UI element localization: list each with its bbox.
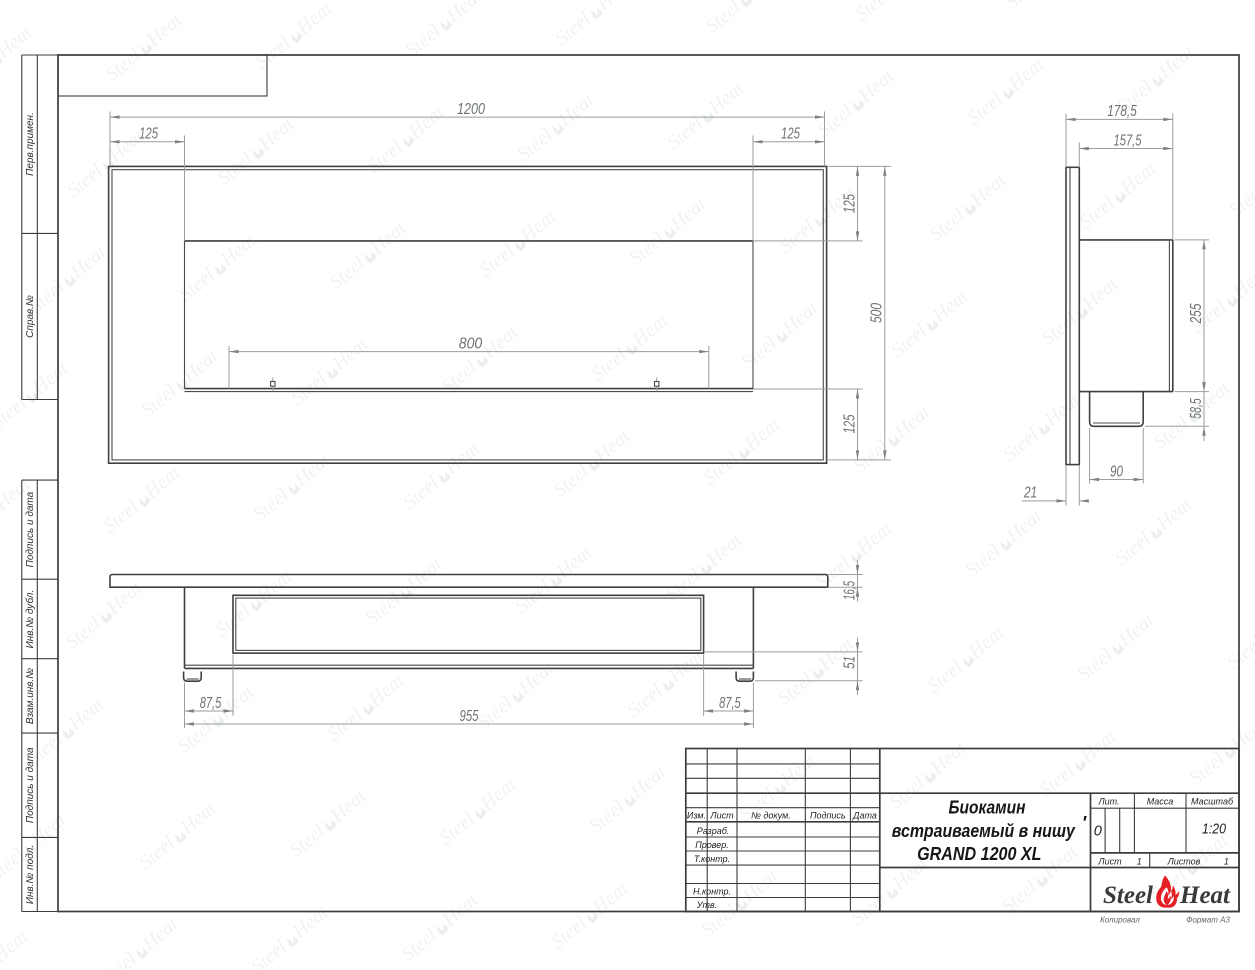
svg-text:Steel: Steel: [363, 136, 407, 178]
svg-text:Steel: Steel: [849, 436, 893, 478]
svg-text:157,5: 157,5: [1114, 132, 1142, 149]
svg-text:Steel: Steel: [1073, 644, 1117, 686]
svg-text:GRAND 1200 XL: GRAND 1200 XL: [917, 843, 1041, 864]
svg-text:Steel: Steel: [1035, 760, 1079, 802]
svg-text:Провер.: Провер.: [695, 840, 729, 850]
svg-text:Разраб.: Разраб.: [697, 826, 730, 836]
svg-text:Инв.№ дубл.: Инв.№ дубл.: [24, 590, 36, 649]
svg-text:Steel: Steel: [137, 380, 181, 422]
svg-text:Подпись и дата: Подпись и дата: [25, 491, 36, 567]
svg-text:Steel: Steel: [663, 112, 707, 154]
svg-text:Масштаб: Масштаб: [1191, 797, 1234, 807]
svg-text:955: 955: [460, 708, 479, 725]
svg-text:Steel: Steel: [1225, 180, 1255, 222]
svg-text:21: 21: [1023, 485, 1037, 502]
svg-text:0: 0: [1094, 824, 1102, 840]
svg-text:Steel: Steel: [847, 888, 891, 930]
svg-text:1: 1: [1137, 857, 1142, 867]
svg-text:Перв.примен.: Перв.примен.: [25, 112, 36, 176]
svg-text:Steel: Steel: [701, 0, 745, 38]
svg-text:Steel: Steel: [813, 100, 857, 142]
svg-text:Steel: Steel: [63, 160, 107, 202]
svg-text:1:20: 1:20: [1202, 822, 1226, 838]
svg-text:Подпись: Подпись: [810, 811, 846, 821]
svg-text:500: 500: [869, 303, 886, 323]
svg-text:Steel: Steel: [923, 656, 967, 698]
svg-text:Steel: Steel: [285, 820, 329, 862]
svg-text:Steel: Steel: [323, 704, 367, 746]
svg-text:Steel: Steel: [97, 948, 141, 970]
svg-text:Steel: Steel: [549, 460, 593, 502]
svg-text:Steel: Steel: [547, 912, 591, 954]
svg-text:Т.контр.: Т.контр.: [694, 854, 730, 864]
svg-text:Steel: Steel: [61, 612, 105, 654]
svg-text:Лист: Лист: [709, 811, 734, 821]
svg-text:16,5: 16,5: [841, 581, 858, 600]
svg-text:Heat: Heat: [1228, 261, 1255, 304]
svg-text:Steel: Steel: [851, 0, 895, 26]
svg-text:Steel: Steel: [251, 32, 295, 74]
svg-text:Steel: Steel: [585, 796, 629, 838]
svg-text:1200: 1200: [457, 101, 485, 118]
svg-text:Steel: Steel: [887, 320, 931, 362]
svg-text:Steel: Steel: [737, 332, 781, 374]
svg-text:125: 125: [781, 126, 800, 143]
svg-text:Steel: Steel: [99, 496, 143, 538]
svg-text:58,5: 58,5: [1188, 398, 1205, 419]
svg-text:Справ.№: Справ.№: [25, 295, 36, 338]
svg-text:Steel: Steel: [661, 564, 705, 606]
svg-text:Steel: Steel: [101, 44, 145, 86]
svg-text:87,5: 87,5: [200, 695, 222, 712]
svg-text:Heat: Heat: [1179, 882, 1231, 909]
svg-text:Heat: Heat: [0, 21, 37, 64]
svg-text:Дата: Дата: [852, 811, 877, 821]
svg-text:Steel: Steel: [1111, 528, 1155, 570]
svg-text:Биокамин: Биокамин: [949, 797, 1026, 818]
svg-text:Масса: Масса: [1147, 797, 1174, 807]
svg-text:Steel: Steel: [1151, 0, 1195, 2]
svg-text:125: 125: [841, 194, 858, 213]
svg-text:Steel: Steel: [475, 240, 519, 282]
svg-text:Копировал: Копировал: [1100, 916, 1140, 925]
svg-text:Steel: Steel: [1001, 0, 1045, 14]
svg-text:87,5: 87,5: [719, 695, 741, 712]
svg-text:125: 125: [139, 126, 158, 143]
svg-text:Steel: Steel: [325, 252, 369, 294]
svg-text:Steel: Steel: [963, 88, 1007, 130]
svg-text:Лит.: Лит.: [1097, 797, 1119, 807]
svg-text:Steel: Steel: [435, 808, 479, 850]
svg-text:Steel: Steel: [397, 924, 441, 966]
svg-text:Steel: Steel: [249, 484, 293, 526]
svg-text:Steel: Steel: [473, 692, 517, 734]
svg-text:Steel: Steel: [699, 448, 743, 490]
svg-text:Steel: Steel: [775, 216, 819, 258]
svg-text:Н.контр.: Н.контр.: [693, 886, 731, 896]
svg-text:Steel: Steel: [135, 832, 179, 874]
svg-text:Steel: Steel: [961, 540, 1005, 582]
svg-text:51: 51: [841, 656, 858, 669]
svg-text:Steel: Steel: [247, 936, 291, 970]
svg-text:Steel: Steel: [399, 472, 443, 514]
svg-text:Steel: Steel: [1103, 882, 1153, 909]
svg-text:Steel: Steel: [625, 228, 669, 270]
svg-text:Листов: Листов: [1167, 857, 1201, 867]
svg-text:Steel: Steel: [925, 204, 969, 246]
svg-text:Steel: Steel: [999, 424, 1043, 466]
svg-text:Формат А3: Формат А3: [1186, 916, 1230, 925]
svg-text:Инв.№ подл.: Инв.№ подл.: [25, 845, 36, 904]
svg-text:800: 800: [459, 335, 483, 352]
svg-text:1: 1: [1224, 857, 1229, 867]
svg-text:Steel: Steel: [175, 264, 219, 306]
svg-text:Steel: Steel: [1185, 748, 1229, 790]
svg-text:Heat: Heat: [0, 925, 33, 968]
svg-text:Steel: Steel: [1075, 192, 1119, 234]
svg-text:': ': [1082, 812, 1087, 833]
svg-text:Steel: Steel: [1149, 412, 1193, 454]
svg-text:№ докум.: № докум.: [751, 811, 791, 821]
svg-text:Steel: Steel: [587, 344, 631, 386]
svg-text:Изм.: Изм.: [687, 811, 706, 821]
svg-text:Steel: Steel: [213, 148, 257, 190]
svg-text:125: 125: [841, 414, 858, 433]
svg-text:Лист: Лист: [1097, 857, 1122, 867]
svg-text:Утв.: Утв.: [696, 900, 717, 910]
svg-text:Steel: Steel: [773, 668, 817, 710]
svg-text:Steel: Steel: [551, 8, 595, 50]
svg-text:Взам.инв.№: Взам.инв.№: [25, 668, 36, 724]
svg-text:90: 90: [1110, 463, 1123, 480]
svg-text:Steel: Steel: [623, 680, 667, 722]
svg-text:Steel: Steel: [513, 124, 557, 166]
svg-text:Steel: Steel: [361, 588, 405, 630]
svg-text:Steel: Steel: [0, 392, 31, 434]
svg-text:178,5: 178,5: [1107, 103, 1137, 120]
svg-text:Steel: Steel: [1037, 308, 1081, 350]
svg-text:Подпись и дата: Подпись и дата: [25, 747, 36, 823]
svg-text:255: 255: [1188, 303, 1205, 324]
svg-text:Steel: Steel: [511, 576, 555, 618]
svg-text:встраиваемый в нишу: встраиваемый в нишу: [892, 820, 1076, 841]
svg-text:Steel: Steel: [173, 716, 217, 758]
